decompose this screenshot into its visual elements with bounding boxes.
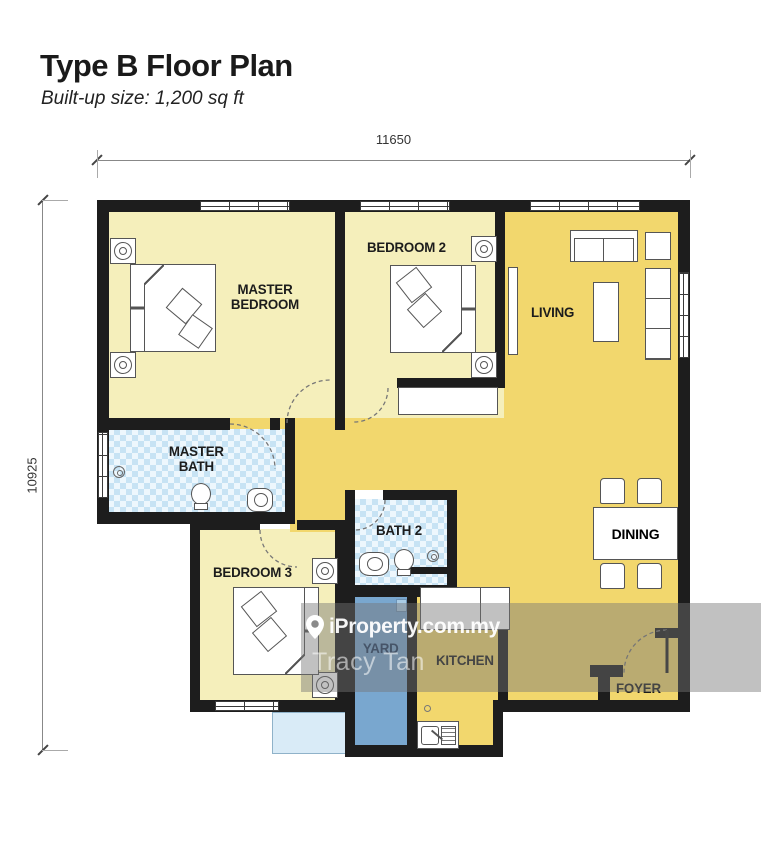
dimension-top-line xyxy=(97,160,690,161)
dimension-top-label: 11650 xyxy=(97,132,690,147)
dimension-left-label: 10925 xyxy=(25,457,40,493)
map-pin-icon xyxy=(306,615,324,639)
room-label-bedroom-2: BEDROOM 2 xyxy=(367,239,446,255)
page-subtitle: Built-up size: 1,200 sq ft xyxy=(41,88,244,110)
watermark-agent: Tracy Tan xyxy=(312,648,425,677)
floor-plan-page: Type B Floor Plan Built-up size: 1,200 s… xyxy=(0,0,761,864)
dimension-left-line xyxy=(42,200,43,750)
room-label-bath-2: BATH 2 xyxy=(376,522,422,538)
room-label-bedroom-3: BEDROOM 3 xyxy=(213,564,292,580)
dimension-extension xyxy=(97,150,98,178)
watermark-brand: iProperty.com.my xyxy=(306,615,500,639)
watermark-brand-text: iProperty.com.my xyxy=(329,615,500,639)
room-label-master-bedroom: MASTER BEDROOM xyxy=(227,282,303,312)
dimension-extension xyxy=(42,750,68,751)
page-title: Type B Floor Plan xyxy=(40,48,293,84)
dimension-extension xyxy=(690,150,691,178)
room-label-living: LIVING xyxy=(531,304,574,320)
room-label-master-bath: MASTER BATH xyxy=(165,444,228,474)
dimension-extension xyxy=(42,200,68,201)
